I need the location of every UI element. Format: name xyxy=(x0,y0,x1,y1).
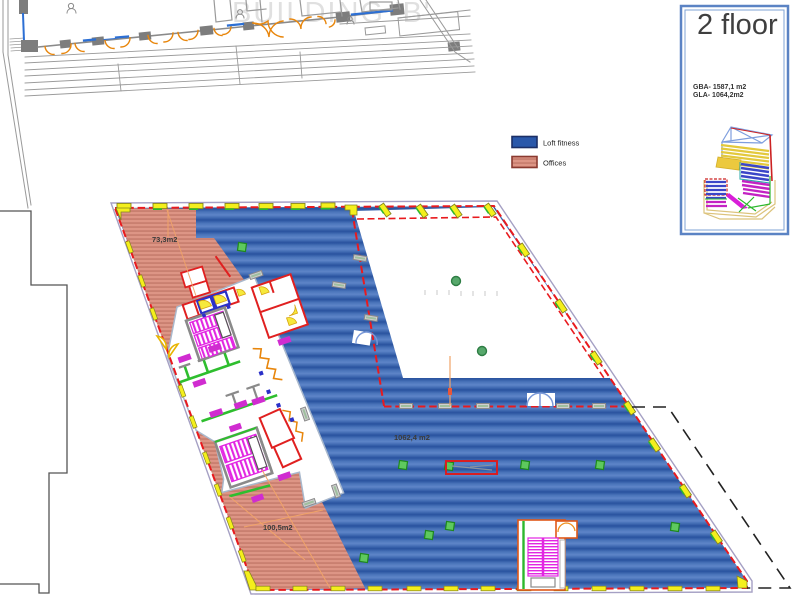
svg-text:GLA- 1064,2m2: GLA- 1064,2m2 xyxy=(693,92,744,99)
svg-text:Offices: Offices xyxy=(543,159,566,168)
svg-text:1062,4 m2: 1062,4 m2 xyxy=(394,433,430,442)
svg-text:Loft fitness: Loft fitness xyxy=(543,139,580,148)
svg-text:73,3m2: 73,3m2 xyxy=(152,235,177,244)
svg-text:100,5m2: 100,5m2 xyxy=(263,523,293,532)
svg-text:2 floor: 2 floor xyxy=(697,9,778,41)
svg-text:GBA- 1587,1 m2: GBA- 1587,1 m2 xyxy=(693,84,746,91)
